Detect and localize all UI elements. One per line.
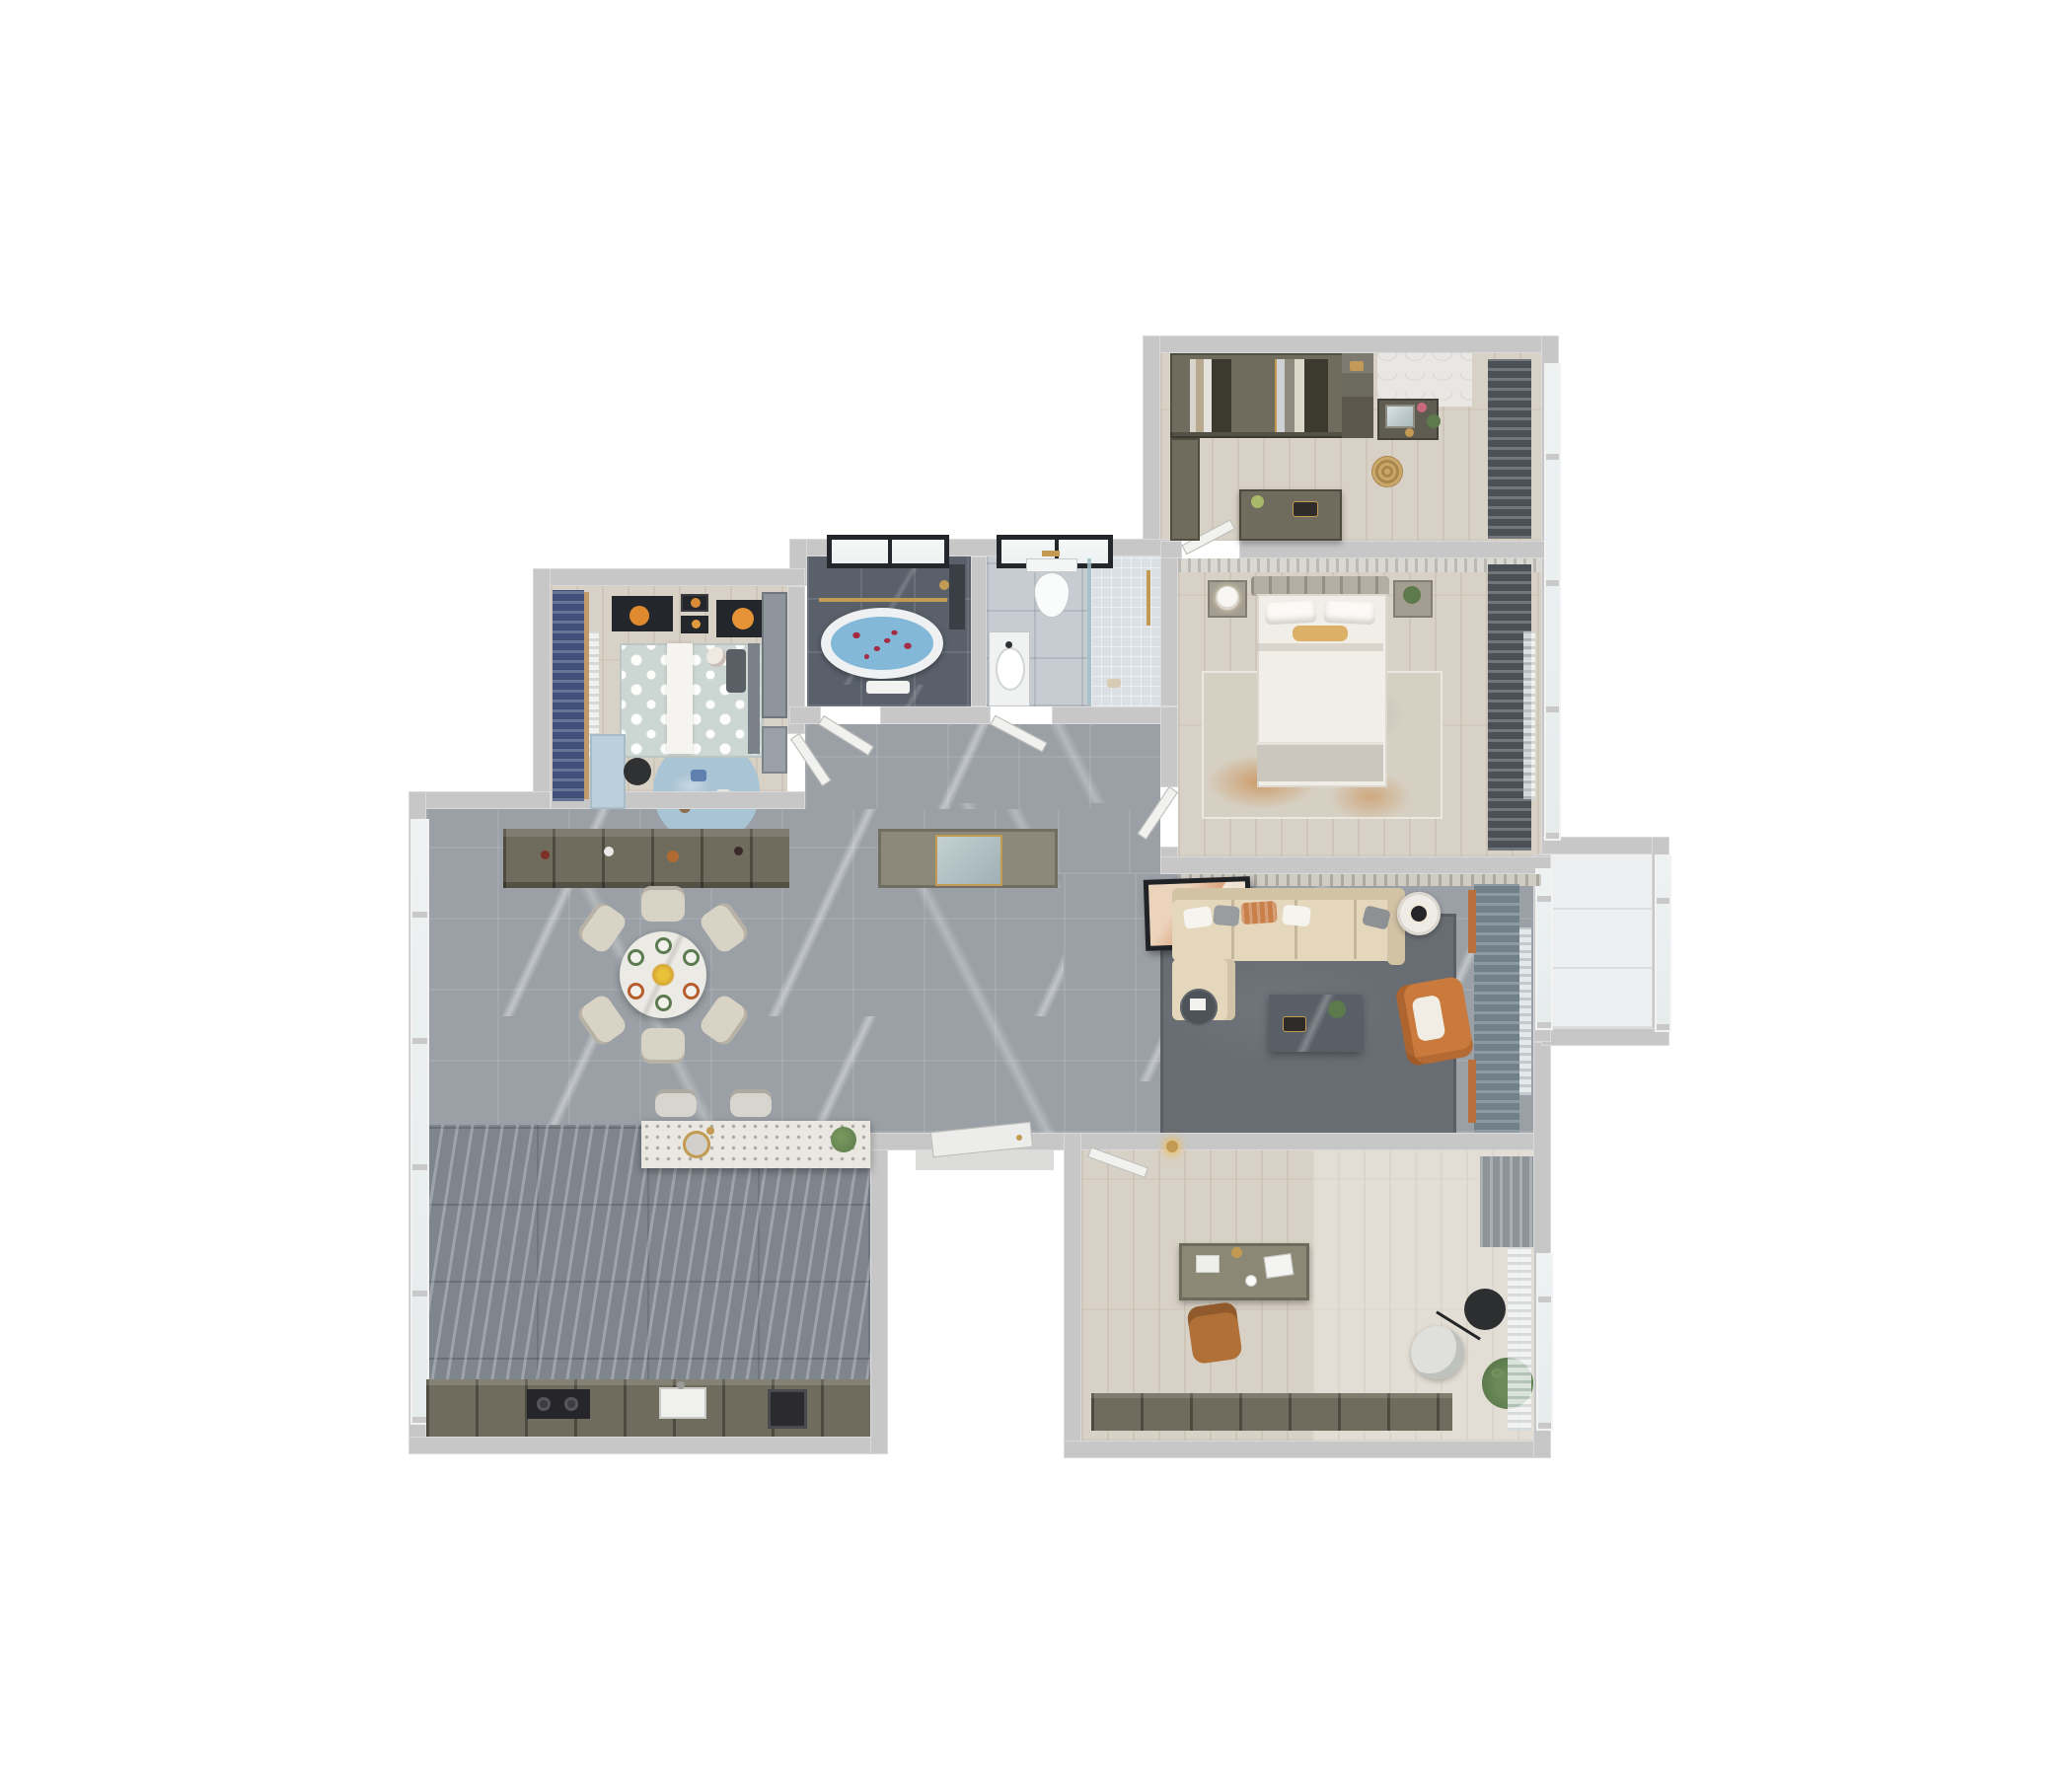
balcony-floor (1551, 854, 1652, 1028)
desk-papers (1196, 1255, 1220, 1273)
lounge-chair (1411, 1326, 1464, 1379)
rattan-basket (1371, 456, 1403, 487)
shower-head-gold (939, 580, 949, 590)
wine-bottle-2 (734, 847, 743, 855)
dining-plate-4 (655, 995, 672, 1011)
kids-shelf (762, 726, 787, 774)
island-plant (831, 1127, 856, 1152)
kids-bed-pillow (726, 649, 746, 693)
wall-living-south (1064, 1133, 1551, 1150)
shelf-basket-item (1350, 361, 1364, 371)
wall-kids-north (533, 568, 805, 586)
bed-pillow-left (1264, 601, 1316, 626)
kids-desk (590, 734, 626, 809)
floor-plan-render (0, 0, 2072, 1776)
teddy-bear (706, 647, 726, 667)
kids-bed-headboard (748, 643, 760, 754)
curtain-rod-orange-top (1468, 890, 1476, 953)
island-sink (683, 1131, 710, 1158)
living-curtain-teal (1474, 884, 1519, 1133)
dining-plate-1 (655, 937, 672, 954)
dining-chair-n (641, 886, 685, 922)
desk-lamp-gold (1231, 1247, 1242, 1258)
shower-gold-bar (1147, 570, 1150, 626)
closet-curtain (1488, 359, 1531, 539)
wall-bath-south-b (880, 706, 991, 724)
island-flowers (1251, 495, 1264, 508)
wall-bath-south-a (789, 706, 821, 724)
sofa-pillow-orange (1240, 901, 1277, 925)
wall-bedroom-living-divider (1160, 856, 1551, 874)
wall-notch-west (870, 1133, 888, 1454)
wine-bottle-1 (541, 851, 550, 859)
island-tray (1293, 501, 1318, 517)
kids-toy-1 (691, 770, 706, 781)
vanity-faucet (1005, 641, 1012, 648)
wall-bath-divider (971, 556, 987, 706)
master-bath-window (827, 535, 949, 568)
wall-study-south (1064, 1441, 1551, 1458)
closet-open-section-2 (1275, 359, 1328, 432)
dining-centerpiece-flowers (651, 963, 675, 987)
bathtub-gold-rail (819, 598, 947, 602)
kitchen-tap (677, 1381, 685, 1389)
side-table-card (1190, 999, 1206, 1010)
dining-chair-s (641, 1028, 685, 1064)
dining-plate-3 (683, 983, 700, 999)
decor-copper-bowl (667, 851, 679, 862)
wall-kids-west (533, 568, 551, 809)
west-window-wall (410, 819, 429, 1425)
toilet-flush-plate (1042, 551, 1060, 556)
wall-balcony-south (1541, 1028, 1669, 1046)
dining-plate-6 (628, 949, 644, 966)
bed-pillow-right (1323, 601, 1375, 626)
closet-wardrobe-column (1170, 438, 1200, 541)
kids-desk-chair (624, 758, 651, 785)
kids-bed-runner (667, 643, 693, 754)
east-window-upper (1544, 363, 1561, 841)
wall-study-west (1064, 1133, 1081, 1458)
cooktop-burner-2 (564, 1397, 578, 1411)
vanity-gold-bottles (1405, 428, 1414, 437)
curtain-rod-orange-bottom (1468, 1060, 1476, 1123)
shower-glass-screen (1087, 558, 1091, 704)
nightstand-plant (1403, 586, 1421, 604)
sofa-pillow-white-1 (1183, 906, 1214, 929)
desk-cup (1245, 1275, 1257, 1287)
cooktop-burner-1 (537, 1397, 551, 1411)
wall-kitchen-south (408, 1437, 888, 1454)
dining-plate-2 (683, 949, 700, 966)
table-lamp-white (1216, 586, 1239, 610)
kids-artwork-planet-4 (732, 608, 754, 629)
floor-lamp-disc (1464, 1289, 1506, 1330)
bath-towel (866, 681, 910, 694)
sofa-pillow-white-2 (1282, 905, 1311, 927)
kitchen-sink (659, 1387, 706, 1419)
bar-stool-2 (730, 1089, 772, 1117)
desk-laptop (1264, 1253, 1295, 1279)
vanity-flowers-pink (1417, 403, 1427, 412)
office-chair-tan (1186, 1301, 1243, 1365)
wall-dressing-north (1143, 335, 1559, 353)
bed-headboard (1251, 576, 1389, 596)
wall-step-dining (408, 791, 551, 809)
sofa-pillow-gray-1 (1213, 905, 1240, 926)
vanity-mirror (1385, 405, 1415, 428)
study-sheer (1508, 1247, 1531, 1431)
wall-dressing-divider-b (1239, 541, 1559, 558)
bathtub-water (831, 617, 933, 670)
hall-channel-floor (1058, 809, 1160, 874)
shower-soap-set (1107, 679, 1121, 688)
wall-dressing-west (1143, 335, 1160, 556)
bed-lumbar-pillow-orange (1293, 626, 1348, 641)
bedroom-sheer (1523, 631, 1535, 799)
headboard-feature-wall (1178, 558, 1541, 572)
wall-guest-bath-east (1160, 549, 1178, 706)
black-table-lamp (1411, 906, 1427, 922)
living-balcony-glass-door (1535, 868, 1553, 1030)
study-curtain-gray (1480, 1156, 1533, 1247)
bar-stool-1 (655, 1089, 697, 1117)
kids-wardrobe (762, 592, 787, 718)
coffee-table-plant (1328, 1000, 1346, 1018)
entry-wardrobe-mirror (935, 835, 1002, 886)
kitchen-oven (768, 1389, 807, 1429)
wall-bath-south-c (1052, 706, 1178, 724)
shower-column (949, 564, 965, 629)
closet-open-section-1 (1190, 359, 1231, 432)
island-faucet (706, 1127, 714, 1135)
kids-artwork-planet-1 (629, 606, 649, 626)
hall-wall-sconce (1166, 1141, 1178, 1152)
kids-artwork-planet-2 (691, 598, 701, 608)
vanity-plant-1 (1427, 414, 1441, 428)
living-sheer (1519, 927, 1531, 1095)
coffee-table-tray (1283, 1016, 1306, 1032)
bed-duvet-fold (1257, 643, 1383, 651)
entrance-door-handle (1016, 1135, 1022, 1141)
study-east-window (1536, 1253, 1553, 1431)
balcony-east-glazing (1655, 854, 1671, 1032)
wall-dressing-divider-a (1160, 541, 1182, 558)
sofa-seat-seam-3 (1354, 900, 1357, 959)
bed-foot-blanket (1257, 742, 1383, 781)
glassware-1 (604, 847, 614, 856)
kids-artwork-planet-3 (692, 620, 701, 629)
toilet-tank (1026, 558, 1077, 572)
kids-curtain (553, 590, 584, 801)
wall-bedroom-west-upper (1160, 706, 1178, 787)
study-low-cabinet (1091, 1393, 1452, 1431)
vanity-sink (996, 647, 1025, 691)
dining-plate-5 (628, 983, 644, 999)
